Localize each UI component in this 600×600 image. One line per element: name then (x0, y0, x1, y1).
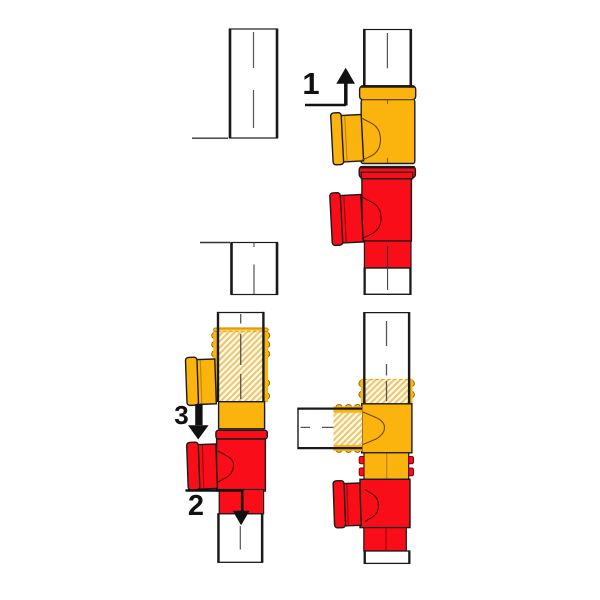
svg-text:1: 1 (302, 66, 319, 101)
svg-text:2: 2 (188, 490, 204, 522)
svg-text:3: 3 (174, 400, 188, 430)
